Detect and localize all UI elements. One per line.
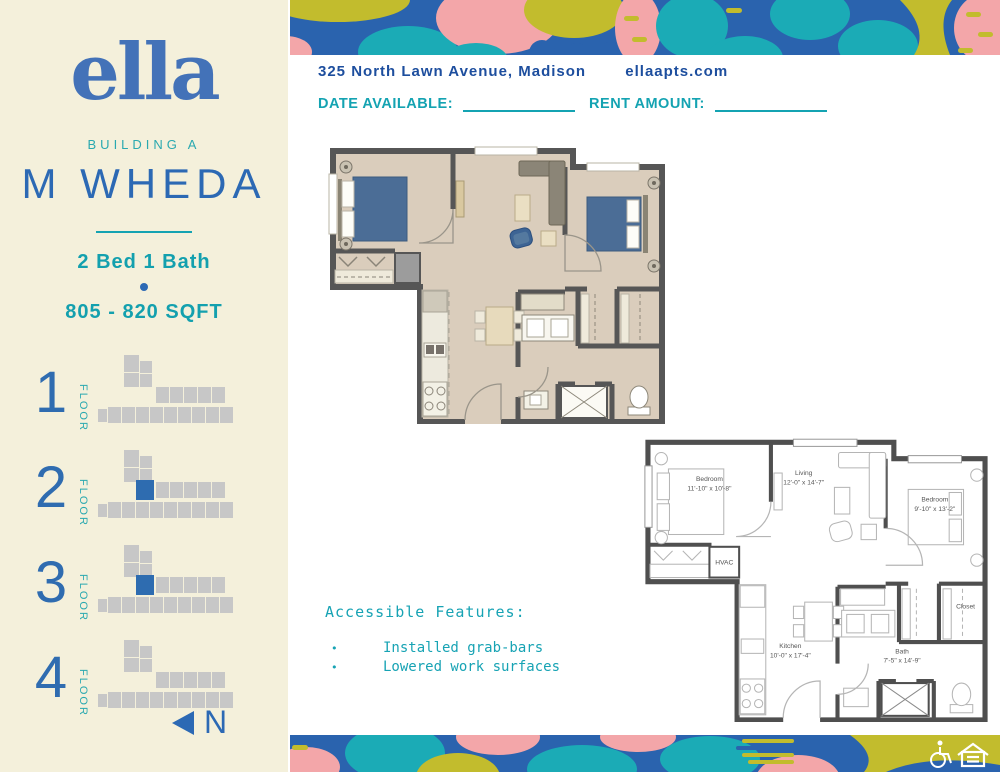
pass-through-counter bbox=[521, 294, 564, 310]
north-label: N bbox=[204, 704, 227, 741]
north-indicator: N bbox=[172, 704, 227, 741]
bench bbox=[335, 270, 393, 283]
bed-bath-label: 2 Bed 1 Bath bbox=[0, 251, 288, 274]
closet-label: Closet bbox=[956, 603, 975, 610]
kitchen-dims: 10'-0" x 17'-4" bbox=[770, 652, 811, 659]
headboard bbox=[643, 195, 648, 253]
features-title: Accessible Features: bbox=[325, 603, 560, 621]
living-name: Living bbox=[795, 470, 813, 477]
feature-item: • Lowered work surfaces bbox=[325, 658, 560, 677]
floor-label: FLOOR bbox=[77, 384, 89, 402]
date-available-input[interactable] bbox=[463, 96, 575, 112]
living-dims: 12'-0" x 14'-7" bbox=[783, 479, 824, 486]
kitchen-name: Kitchen bbox=[779, 643, 801, 650]
sidebar: ella BUILDING A M WHEDA 2 Bed 1 Bath 805… bbox=[0, 0, 288, 772]
hvac-closet bbox=[395, 253, 420, 283]
unit-floorplan-dimensions: HVAC Bedroom 11'-10" x 10'-8" Living 12'… bbox=[633, 430, 1000, 722]
pillow bbox=[627, 200, 639, 222]
kitchen-counters bbox=[422, 290, 449, 417]
floor-row-3: 3 FLOOR bbox=[28, 535, 268, 630]
washer-dryer bbox=[882, 683, 929, 716]
bedroom1-dims: 11'-10" x 10'-8" bbox=[687, 485, 732, 492]
hvac-box: HVAC bbox=[709, 547, 739, 578]
fields-row: DATE AVAILABLE: RENT AMOUNT: bbox=[318, 96, 841, 112]
floor-label: FLOOR bbox=[77, 479, 89, 497]
floor-row-1: 1 FLOOR bbox=[28, 345, 268, 440]
side-table bbox=[541, 231, 556, 246]
pillow bbox=[342, 181, 354, 207]
accessible-features: Accessible Features: • Installed grab-ba… bbox=[325, 603, 560, 677]
tv-console bbox=[456, 181, 464, 217]
coffee-table bbox=[515, 195, 530, 221]
north-arrow-icon bbox=[172, 711, 194, 735]
building-footprint-map bbox=[98, 355, 234, 430]
website-text: ellaapts.com bbox=[625, 63, 728, 80]
building-footprint-map bbox=[98, 450, 234, 525]
bullet: • bbox=[325, 639, 383, 658]
floor-number: 4 bbox=[28, 649, 74, 707]
rent-amount-label: RENT AMOUNT: bbox=[589, 96, 705, 112]
rent-amount-input[interactable] bbox=[715, 96, 827, 112]
bedroom2-dims: 9'-10" x 13'-2" bbox=[914, 506, 955, 513]
floorplan-flyer-page: ella BUILDING A M WHEDA 2 Bed 1 Bath 805… bbox=[0, 0, 1000, 772]
floor-number: 1 bbox=[28, 364, 74, 422]
bath-cabinet bbox=[524, 391, 548, 409]
headboard bbox=[338, 179, 342, 241]
ella-logo: ella bbox=[0, 34, 288, 112]
feature-text: Lowered work surfaces bbox=[383, 658, 560, 677]
bed bbox=[353, 177, 407, 241]
unit-floorplan-rendered bbox=[325, 139, 670, 424]
floor-number: 3 bbox=[28, 554, 74, 612]
pillow bbox=[342, 211, 354, 237]
address-text: 325 North Lawn Avenue, Madison bbox=[318, 63, 586, 80]
sqft-label: 805 - 820 SQFT bbox=[0, 301, 288, 324]
sofa-chaise bbox=[549, 161, 565, 225]
toilet bbox=[628, 386, 650, 415]
date-available-label: DATE AVAILABLE: bbox=[318, 96, 453, 112]
double-vanity bbox=[522, 315, 574, 341]
floor-label: FLOOR bbox=[77, 574, 89, 592]
decorative-band-bottom bbox=[290, 735, 1000, 772]
window bbox=[475, 147, 537, 155]
window bbox=[329, 174, 337, 234]
floor-label: FLOOR bbox=[77, 669, 89, 687]
bedroom1-name: Bedroom bbox=[696, 476, 723, 483]
bath-dims: 7'-5" x 14'-9" bbox=[883, 658, 921, 665]
address-row: 325 North Lawn Avenue, Madison ellaapts.… bbox=[318, 63, 728, 80]
floor-number: 2 bbox=[28, 459, 74, 517]
divider-line bbox=[96, 231, 192, 233]
bath-name: Bath bbox=[895, 648, 909, 655]
floor-row-4: 4 FLOOR bbox=[28, 630, 268, 725]
window bbox=[587, 163, 639, 171]
floor-selector: 1 FLOOR 2 FLOOR 3 FLOOR 4 FLOOR bbox=[28, 345, 268, 725]
building-footprint-map bbox=[98, 545, 234, 620]
feature-text: Installed grab-bars bbox=[383, 639, 543, 658]
unit-name: M WHEDA bbox=[0, 160, 288, 208]
bullet-dot bbox=[140, 283, 148, 291]
bullet: • bbox=[325, 658, 383, 677]
washer-dryer bbox=[561, 386, 607, 418]
bedroom2-name: Bedroom bbox=[921, 497, 948, 504]
hvac-label: HVAC bbox=[715, 560, 733, 567]
floor-row-2: 2 FLOOR bbox=[28, 440, 268, 535]
building-label: BUILDING A bbox=[0, 137, 288, 152]
decorative-band-top bbox=[290, 0, 1000, 55]
main-content: 325 North Lawn Avenue, Madison ellaapts.… bbox=[290, 0, 1000, 772]
feature-item: • Installed grab-bars bbox=[325, 639, 560, 658]
pillow bbox=[627, 226, 639, 248]
